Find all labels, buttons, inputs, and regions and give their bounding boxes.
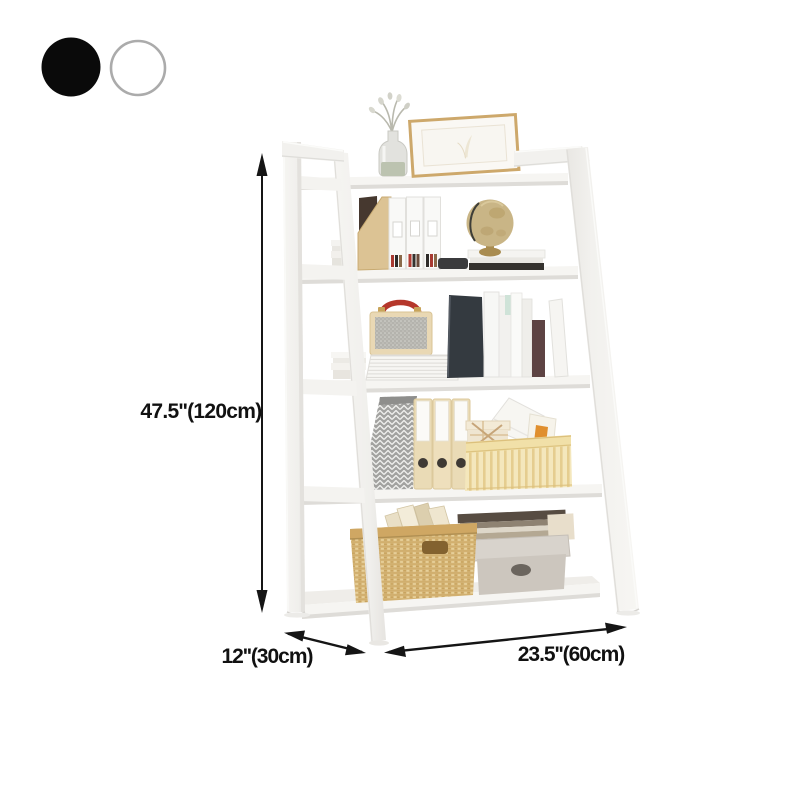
svg-text:12''(30cm): 12''(30cm) — [221, 645, 312, 668]
svg-text:23.5''(60cm): 23.5''(60cm) — [518, 643, 625, 666]
svg-text:47.5''(120cm): 47.5''(120cm) — [140, 400, 261, 423]
